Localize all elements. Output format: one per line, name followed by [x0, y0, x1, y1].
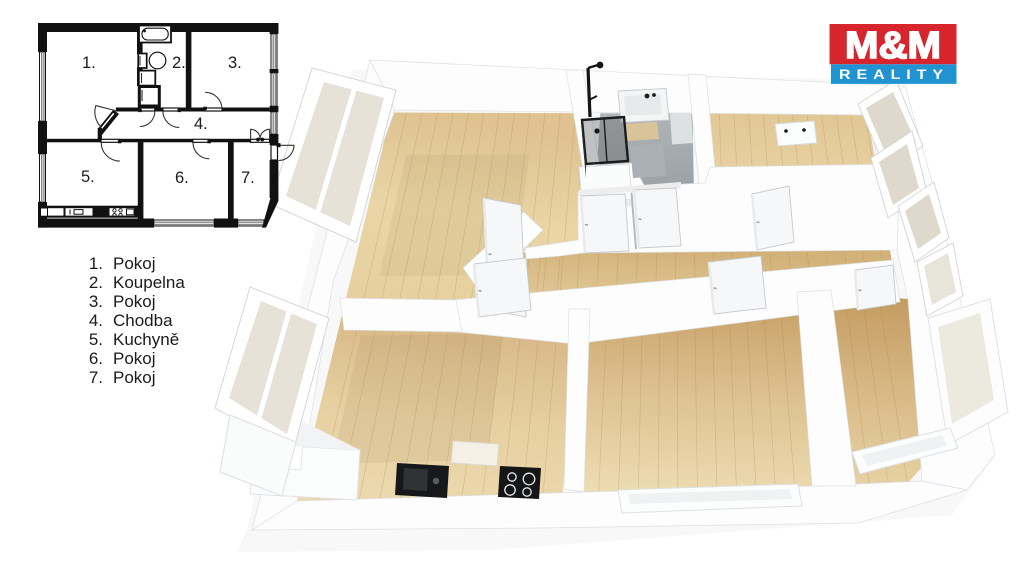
svg-text:5.: 5. [89, 330, 103, 349]
svg-text:Chodba: Chodba [113, 311, 173, 330]
svg-text:Pokoj: Pokoj [113, 368, 156, 387]
svg-text:Pokoj: Pokoj [113, 349, 156, 368]
svg-text:REALITY: REALITY [839, 67, 949, 82]
svg-text:1.: 1. [89, 254, 103, 273]
svg-text:7.: 7. [89, 368, 103, 387]
svg-text:3.: 3. [89, 292, 103, 311]
svg-text:7.: 7. [241, 169, 255, 187]
svg-text:6.: 6. [89, 349, 103, 368]
svg-text:Pokoj: Pokoj [113, 292, 156, 311]
svg-text:1.: 1. [82, 54, 96, 72]
svg-text:2.: 2. [172, 54, 186, 72]
svg-text:2.: 2. [89, 273, 103, 292]
svg-text:5.: 5. [81, 168, 95, 186]
svg-text:Pokoj: Pokoj [113, 254, 156, 273]
svg-text:M&M: M&M [845, 25, 941, 67]
svg-text:6.: 6. [175, 169, 189, 187]
svg-text:4.: 4. [194, 115, 208, 133]
svg-text:Koupelna: Koupelna [113, 273, 185, 292]
svg-text:Kuchyně: Kuchyně [113, 330, 179, 349]
svg-text:4.: 4. [89, 311, 103, 330]
svg-text:3.: 3. [228, 54, 242, 72]
